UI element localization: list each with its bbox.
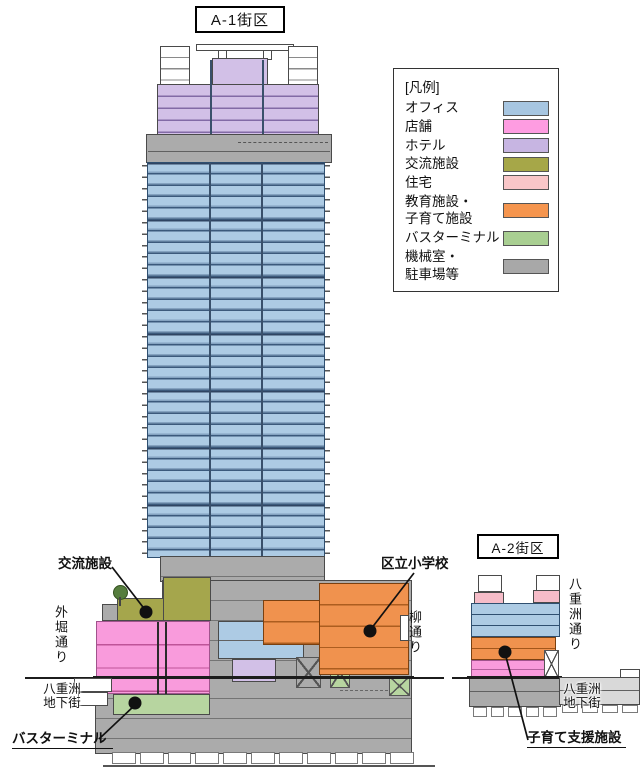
legend-swatch-machine-room	[503, 259, 549, 274]
legend-swatch-education	[503, 203, 549, 218]
legend-item-exchange: 交流施設	[405, 155, 549, 174]
legend-item-office: オフィス	[405, 99, 549, 118]
label-sotobori-dori: 外堀通り	[51, 605, 70, 665]
legend-item-machine-room: 機械室・ 駐車場等	[405, 248, 549, 285]
legend-swatch-housing	[503, 175, 549, 190]
legend-swatch-exchange	[503, 157, 549, 172]
legend-swatch-shop	[503, 119, 549, 134]
label-elementary-school: 区立小学校	[381, 552, 449, 572]
legend-item-shop: 店舗	[405, 118, 549, 137]
label-yaesu-dori: 八重洲通り	[565, 577, 584, 652]
leader-childcare-support	[505, 653, 528, 740]
dot-childcare-support	[499, 646, 512, 659]
label-childcare-support: 子育て支援施設	[527, 726, 626, 748]
legend-item-bus-terminal: バスターミナル	[405, 229, 549, 248]
legend-swatch-bus-terminal	[503, 231, 549, 246]
legend-item-hotel: ホテル	[405, 136, 549, 155]
dot-elementary-school	[364, 625, 377, 638]
legend-item-education: 教育施設・ 子育て施設	[405, 192, 549, 229]
legend-swatch-office	[503, 101, 549, 116]
legend-title: [凡例]	[405, 76, 549, 96]
legend-item-housing: 住宅	[405, 173, 549, 192]
legend-box: [凡例] オフィス 店舗 ホテル 交流施設 住宅 教育施設・ 子育て施設 バスタ…	[393, 68, 559, 292]
building-section-diagram: A-1街区	[0, 0, 640, 771]
leader-exchange-facility	[112, 567, 146, 611]
dot-exchange-facility	[140, 606, 153, 619]
label-yaesu-underground-right: 八重洲 地下街	[558, 682, 606, 711]
label-exchange-facility: 交流施設	[58, 552, 112, 572]
label-yanagi-dori: 柳通り	[405, 610, 424, 655]
label-bus-terminal: バスターミナル	[12, 727, 113, 749]
label-yaesu-underground-left: 八重洲 地下街	[36, 682, 88, 711]
dot-bus-terminal	[129, 697, 142, 710]
legend-swatch-hotel	[503, 138, 549, 153]
